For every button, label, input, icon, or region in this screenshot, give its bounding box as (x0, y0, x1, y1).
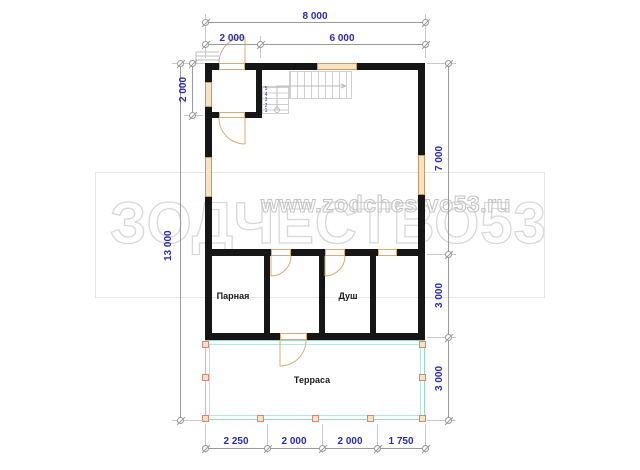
window-right-wall (418, 155, 425, 195)
dim-label-bottom-seg1: 2 250 (206, 436, 266, 447)
tick-marker (202, 19, 209, 26)
dim-label-bottom-seg2: 2 000 (264, 436, 324, 447)
dim-label-top-seg1: 2 000 (202, 33, 262, 44)
dim-line-bottom (205, 448, 425, 449)
door-opening-terrace (280, 333, 307, 340)
dim-label-right-seg2: 3 000 (434, 265, 445, 325)
dim-line-left-total (180, 63, 181, 420)
dim-line-right (448, 63, 449, 420)
tick-marker (422, 41, 429, 48)
wall-interior-steam-room (264, 249, 270, 340)
dim-line-left-upper (192, 63, 193, 115)
wall-interior-shower-left (319, 249, 325, 340)
dim-label-left-upper: 2 000 (178, 64, 189, 114)
dim-label-right-seg3: 3 000 (434, 348, 445, 408)
watermark-url-text: www.zodchestvo53.ru (260, 191, 512, 218)
dim-line-top-total (205, 22, 425, 23)
terrace-post (419, 415, 426, 422)
terrace-post (202, 374, 209, 381)
door-opening-entry-to-hall (219, 112, 245, 118)
door-opening-corridor (271, 249, 291, 256)
room-label-terrace: Терраса (272, 375, 352, 385)
wall-entry-room-right (256, 63, 262, 118)
terrace-post (202, 341, 209, 348)
dim-label-top-seg2: 6 000 (312, 33, 372, 44)
floor-plan-canvas: ЗОДЧЕСТВО53 www.zodchestvo53.ru 5 4 3 2 … (0, 0, 640, 470)
tick-marker (445, 60, 452, 67)
wall-exterior-bottom (205, 333, 425, 340)
dim-line-top-segments (205, 44, 425, 45)
door-opening-right-room (378, 249, 397, 256)
tick-marker (189, 112, 196, 119)
tick-marker (177, 417, 184, 424)
dim-label-bottom-seg4: 1 750 (371, 436, 431, 447)
terrace-post (257, 415, 264, 422)
room-label-steam: Парная (203, 291, 263, 301)
door-arc-entry-to-hall (219, 118, 245, 144)
dim-label-right-seg1: 7 000 (434, 128, 445, 188)
terrace-post (419, 374, 426, 381)
wall-interior-shower-right (370, 249, 376, 340)
dim-label-left-total: 13 000 (163, 215, 174, 277)
tick-marker (189, 60, 196, 67)
terrace-post (367, 415, 374, 422)
room-label-shower: Душ (328, 291, 368, 301)
window-top-wall (317, 63, 357, 70)
terrace-post (419, 341, 426, 348)
tick-marker (422, 19, 429, 26)
wall-exterior-right (418, 63, 425, 340)
window-entry-room (205, 82, 212, 107)
stair-step-numbers-column: 5 4 3 2 1 (262, 87, 270, 115)
entry-porch-steps (196, 52, 219, 63)
door-opening-entry-top (219, 63, 245, 70)
door-opening-shower (325, 249, 345, 256)
terrace-post (312, 415, 319, 422)
tick-marker (445, 417, 452, 424)
stair-upper-flight (289, 71, 352, 99)
dim-label-top-total: 8 000 (285, 11, 345, 22)
tick-marker (445, 251, 452, 258)
window-left-wall (205, 157, 212, 197)
tick-marker (445, 334, 452, 341)
